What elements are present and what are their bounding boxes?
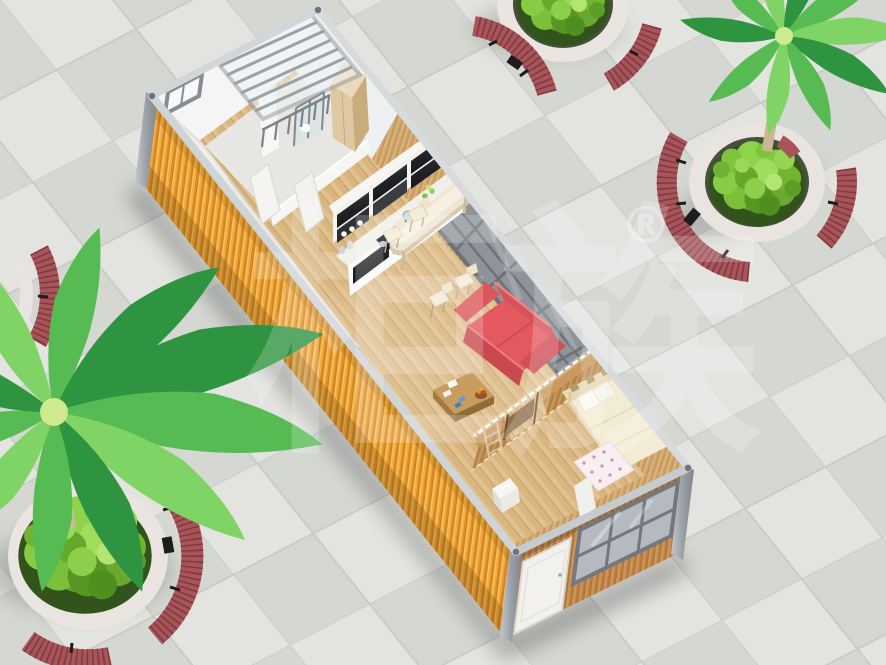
brand-watermark: 柜族 ® [245,183,763,491]
watermark-text: 柜族 [245,183,763,491]
container-house-aerial-render: 柜族 ® [0,0,886,665]
registered-trademark-badge: ® [620,196,672,256]
scene-render: 柜族 ® [0,0,886,665]
